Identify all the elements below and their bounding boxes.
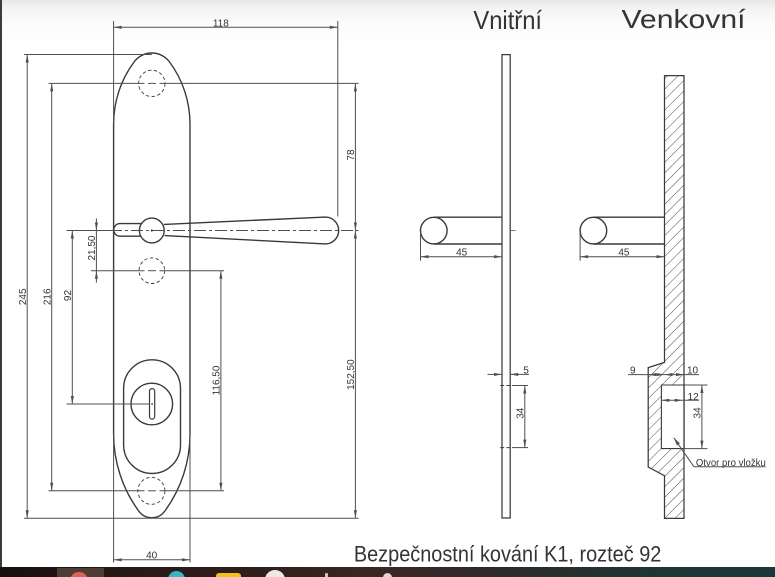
svg-text:Vnitřní: Vnitřní: [473, 5, 542, 35]
svg-text:152,50: 152,50: [346, 359, 357, 390]
svg-text:45: 45: [456, 248, 468, 259]
svg-text:Venkovní: Venkovní: [622, 4, 747, 34]
svg-text:245: 245: [18, 288, 29, 305]
svg-text:21,50: 21,50: [87, 235, 98, 260]
svg-text:92: 92: [63, 290, 74, 302]
svg-text:9: 9: [630, 366, 636, 377]
svg-text:118: 118: [213, 19, 229, 30]
svg-text:116,50: 116,50: [212, 365, 223, 395]
svg-text:10: 10: [687, 366, 699, 377]
svg-text:Otvor pro vložku: Otvor pro vložku: [696, 457, 766, 469]
svg-text:12: 12: [688, 392, 700, 403]
svg-text:216: 216: [43, 288, 54, 305]
svg-text:34: 34: [693, 407, 704, 419]
svg-text:40: 40: [146, 550, 158, 561]
svg-text:Bezpečnostní kování K1, rozteč: Bezpečnostní kování K1, rozteč 92: [354, 541, 662, 566]
svg-text:5: 5: [523, 366, 529, 377]
svg-text:78: 78: [346, 149, 357, 161]
svg-text:45: 45: [618, 248, 630, 259]
svg-text:34: 34: [516, 407, 527, 419]
